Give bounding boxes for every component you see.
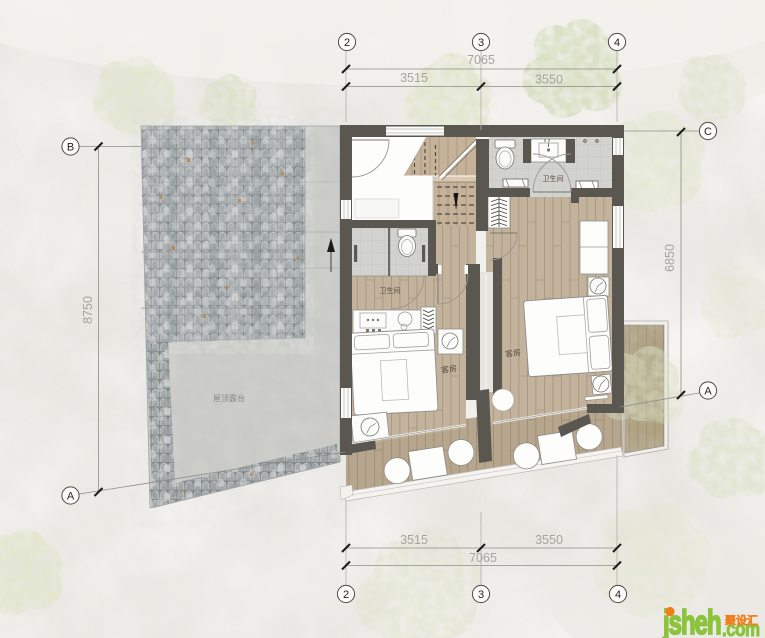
- svg-text:3515: 3515: [400, 71, 428, 85]
- svg-text:屋顶露台: 屋顶露台: [213, 393, 245, 403]
- svg-text:4: 4: [615, 589, 621, 601]
- svg-text:3550: 3550: [535, 533, 563, 547]
- svg-text:2: 2: [343, 589, 349, 601]
- svg-text:2: 2: [344, 37, 350, 49]
- svg-text:卫生间: 卫生间: [380, 286, 401, 295]
- svg-text:3: 3: [478, 589, 484, 601]
- svg-text:3: 3: [478, 37, 484, 49]
- svg-text:C: C: [704, 126, 712, 138]
- svg-text:B: B: [67, 142, 74, 154]
- svg-text:7065: 7065: [469, 551, 497, 565]
- svg-text:3515: 3515: [400, 533, 428, 547]
- svg-text:4: 4: [614, 37, 620, 49]
- svg-text:8750: 8750: [81, 296, 95, 324]
- svg-text:A: A: [67, 491, 75, 503]
- svg-text:7065: 7065: [467, 53, 495, 67]
- svg-text:6850: 6850: [663, 244, 677, 272]
- svg-text:A: A: [704, 386, 712, 398]
- svg-text:3550: 3550: [535, 73, 563, 87]
- svg-text:聚设汇: 聚设汇: [724, 613, 758, 627]
- svg-text:卫生间: 卫生间: [543, 174, 564, 183]
